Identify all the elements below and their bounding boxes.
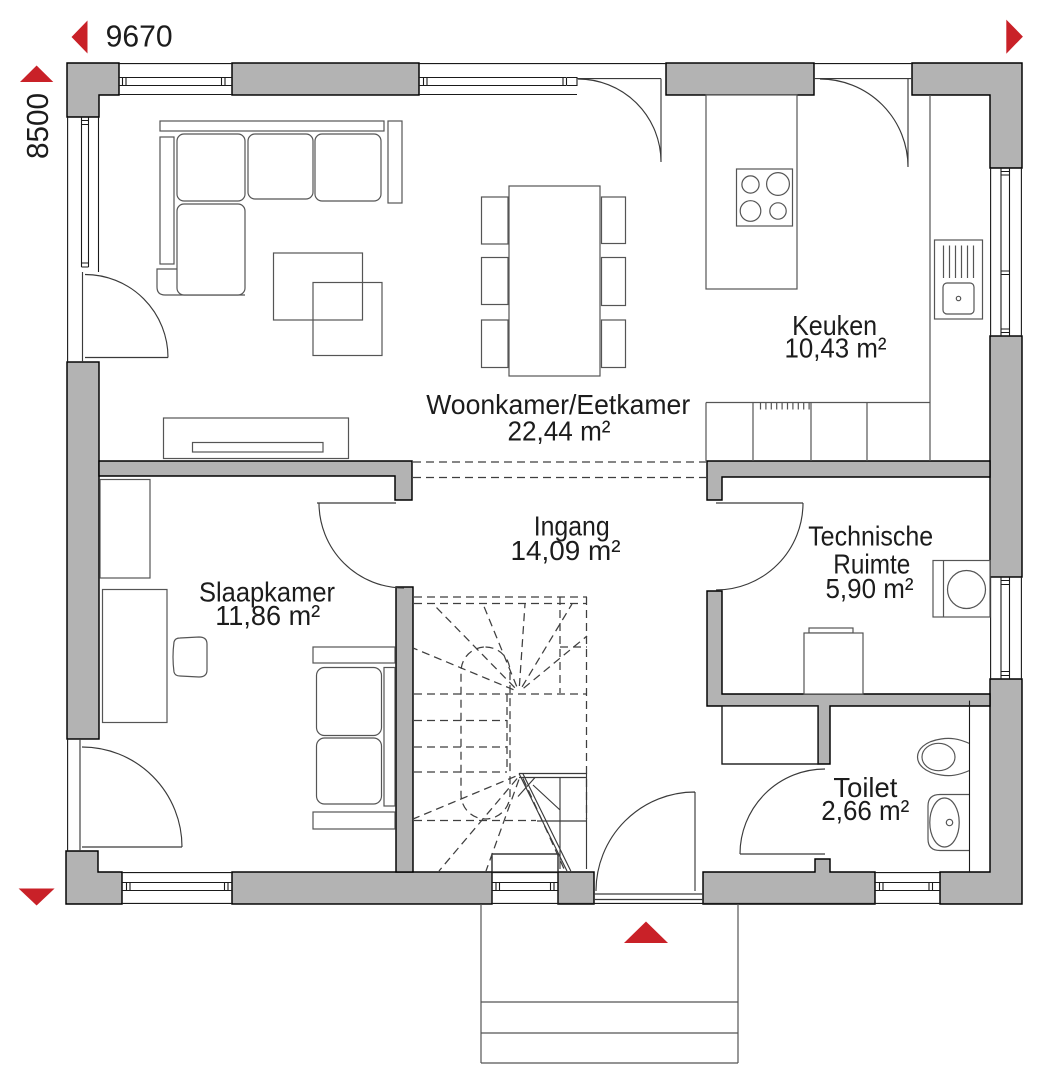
svg-text:14,09 m²: 14,09 m² <box>511 535 621 566</box>
svg-text:Technische: Technische <box>808 521 933 552</box>
svg-text:22,44 m²: 22,44 m² <box>508 416 611 447</box>
svg-text:11,86 m²: 11,86 m² <box>215 600 320 631</box>
svg-text:5,90 m²: 5,90 m² <box>826 573 914 604</box>
svg-text:2,66 m²: 2,66 m² <box>821 795 909 826</box>
svg-text:8500: 8500 <box>20 93 55 159</box>
svg-text:9670: 9670 <box>106 19 173 54</box>
svg-text:10,43 m²: 10,43 m² <box>785 333 887 364</box>
